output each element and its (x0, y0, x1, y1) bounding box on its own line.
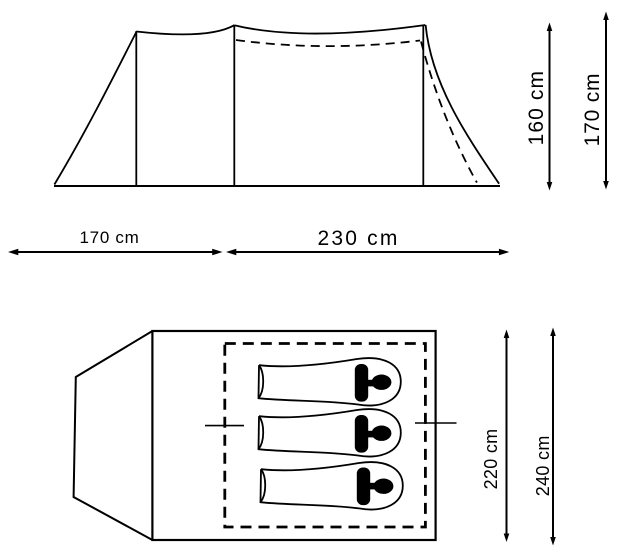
svg-text:230 cm: 230 cm (317, 227, 399, 250)
svg-text:170 cm: 170 cm (581, 73, 604, 147)
svg-text:220 cm: 220 cm (481, 429, 501, 490)
svg-text:240 cm: 240 cm (533, 435, 553, 496)
svg-text:160 cm: 160 cm (525, 70, 548, 145)
svg-text:170 cm: 170 cm (80, 228, 140, 247)
